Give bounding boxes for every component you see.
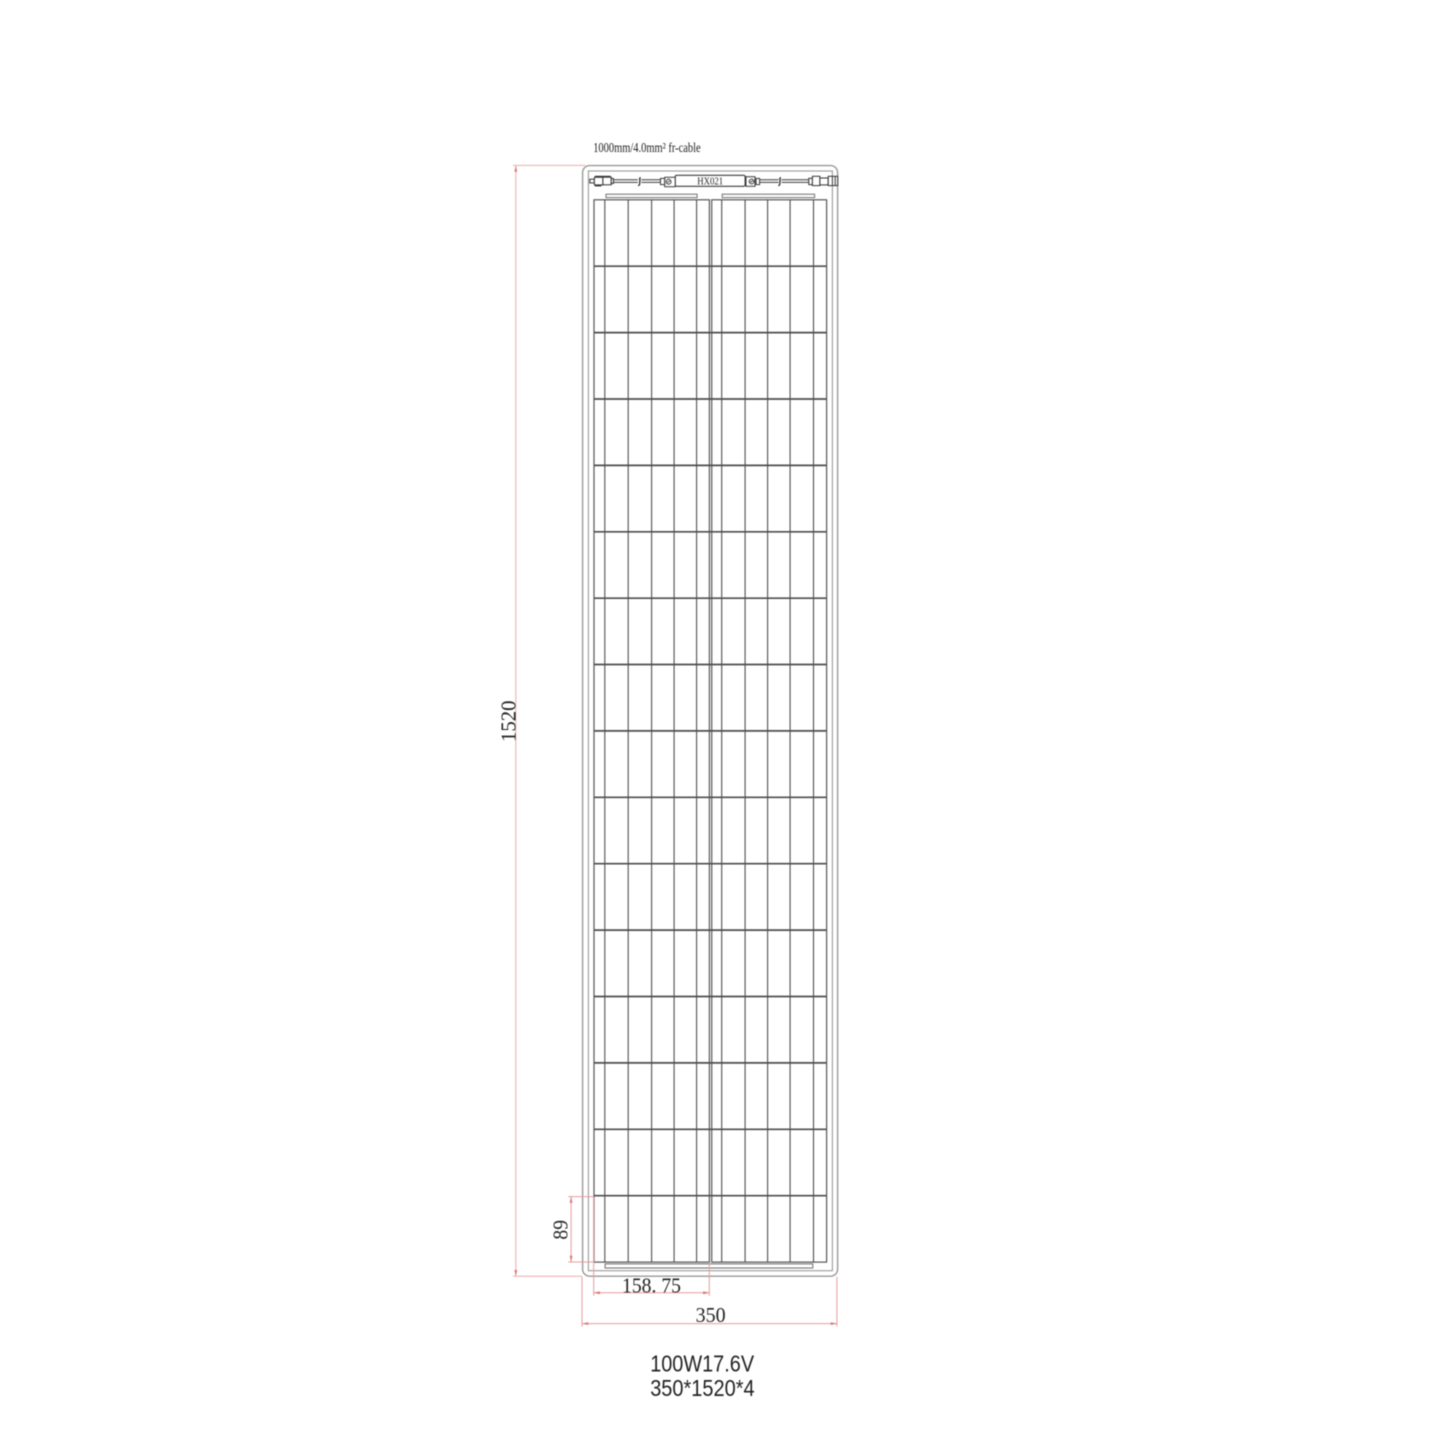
svg-text:HX021: HX021	[697, 177, 723, 188]
svg-text:350*1520*4: 350*1520*4	[650, 1375, 755, 1401]
svg-text:158. 75: 158. 75	[622, 1273, 681, 1297]
svg-text:100W17.6V: 100W17.6V	[650, 1351, 754, 1377]
svg-text:350: 350	[696, 1303, 726, 1327]
svg-text:89: 89	[549, 1220, 573, 1240]
svg-text:1000mm/4.0mm² fr-cable: 1000mm/4.0mm² fr-cable	[593, 140, 701, 155]
svg-text:1520: 1520	[496, 701, 520, 743]
